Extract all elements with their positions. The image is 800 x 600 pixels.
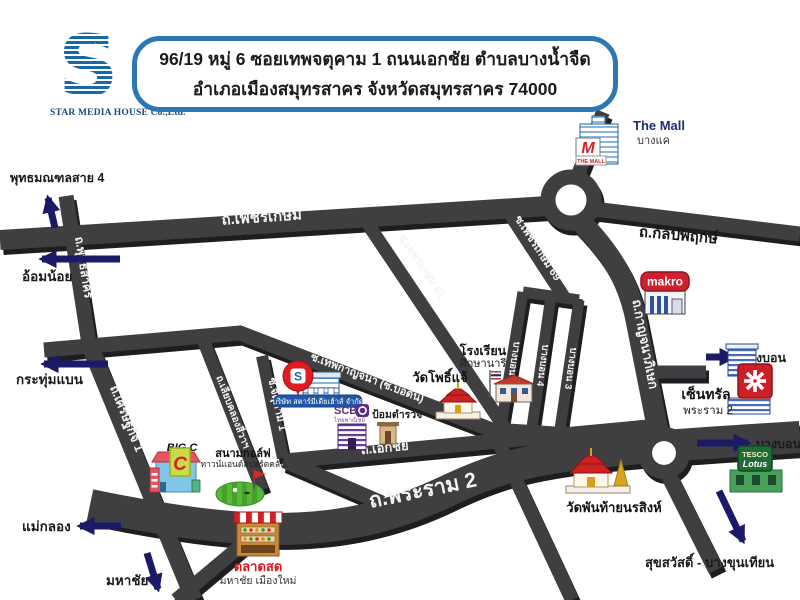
golf-course-icon (216, 470, 266, 506)
bigc-icon: C (150, 448, 200, 492)
school-name: โรงเรียน (459, 343, 507, 358)
market-sub: มหาชัย เมืองใหม่ (220, 574, 297, 587)
dest-mahachai: มหาชัย (106, 573, 149, 588)
scb-logo-icon (356, 404, 369, 417)
logo-star-icon: ★ (88, 40, 103, 60)
map-canvas: S ★ STAR MEDIA HOUSE Co.,Ltd. 96/19 หมู่… (0, 0, 800, 600)
wat-phochae-name: วัดโพธิ์แจ้ (412, 367, 467, 385)
scb-name: SCB (334, 405, 357, 417)
tesco-sign-line1: TESCO (742, 450, 768, 459)
police-name: ป้อมตำรวจ (372, 408, 422, 421)
golf-sub: ทาวน์แอนด์สปอร์ตคลับ (201, 459, 286, 469)
arrow-down-mahachai (147, 553, 158, 589)
logo-stripes (58, 26, 136, 106)
scb-sub: ไทยพาณิชย์ (333, 416, 365, 424)
school-sub: ศึกษานารี (460, 357, 507, 370)
bigc-sign-letter: C (173, 454, 187, 475)
arrow-down-suksawat (719, 491, 743, 541)
the-mall-name: The Mall (633, 118, 685, 133)
arrow-up-phutthamonthon4 (48, 198, 55, 228)
makro-sign: makro (647, 275, 683, 289)
makro-icon: makro (641, 272, 689, 314)
central-sub: พระราม 2 (683, 405, 733, 417)
the-mall-icon: M THE MALL (576, 116, 618, 165)
roundabout-bottom-hole (652, 441, 676, 465)
market-icon (234, 512, 282, 556)
dest-suksawat: สุขสวัสดิ์ - บางขุนเทียน (645, 552, 774, 571)
pin-s-letter: S (294, 370, 302, 384)
scb-icon: SCB ไทยพาณิชย์ (333, 404, 369, 450)
dest-omnoi: อ้อมน้อย (22, 269, 72, 284)
address-line-2: อำเภอเมืองสมุทรสาคร จังหวัดสมุทรสาคร 740… (193, 75, 557, 104)
tesco-sign-line2: Lotus (743, 459, 768, 469)
road-label-liapkhlong: ถ.เลียบคลองสี่วาฯ (213, 373, 254, 450)
the-mall-sign: THE MALL (577, 159, 605, 165)
address-line-1: 96/19 หมู่ 6 ซอยเทพจตุคาม 1 ถนนเอกชัย ตำ… (159, 45, 591, 74)
dest-maeklong: แม่กลอง (22, 519, 71, 534)
wat-phanthai-name: วัดพันท้ายนรสิงห์ (566, 500, 661, 515)
central-name: เซ็นทรัล (681, 385, 730, 402)
thai-flag-icon (491, 371, 501, 380)
the-mall-sub: บางแค (637, 135, 670, 147)
star-media-logo: S ★ STAR MEDIA HOUSE Co.,Ltd. (50, 26, 145, 121)
the-mall-m-letter: M (581, 140, 595, 157)
dest-krathumbaen: กระทุ่มแบน (16, 372, 84, 388)
market-awning-icon (234, 512, 282, 523)
dest-phutthamonthon4: พุทธมณฑลสาย 4 (10, 171, 104, 186)
address-box: 96/19 หมู่ 6 ซอยเทพจตุคาม 1 ถนนเอกชัย ตำ… (132, 36, 618, 112)
market-name: ตลาดสด (234, 559, 283, 574)
